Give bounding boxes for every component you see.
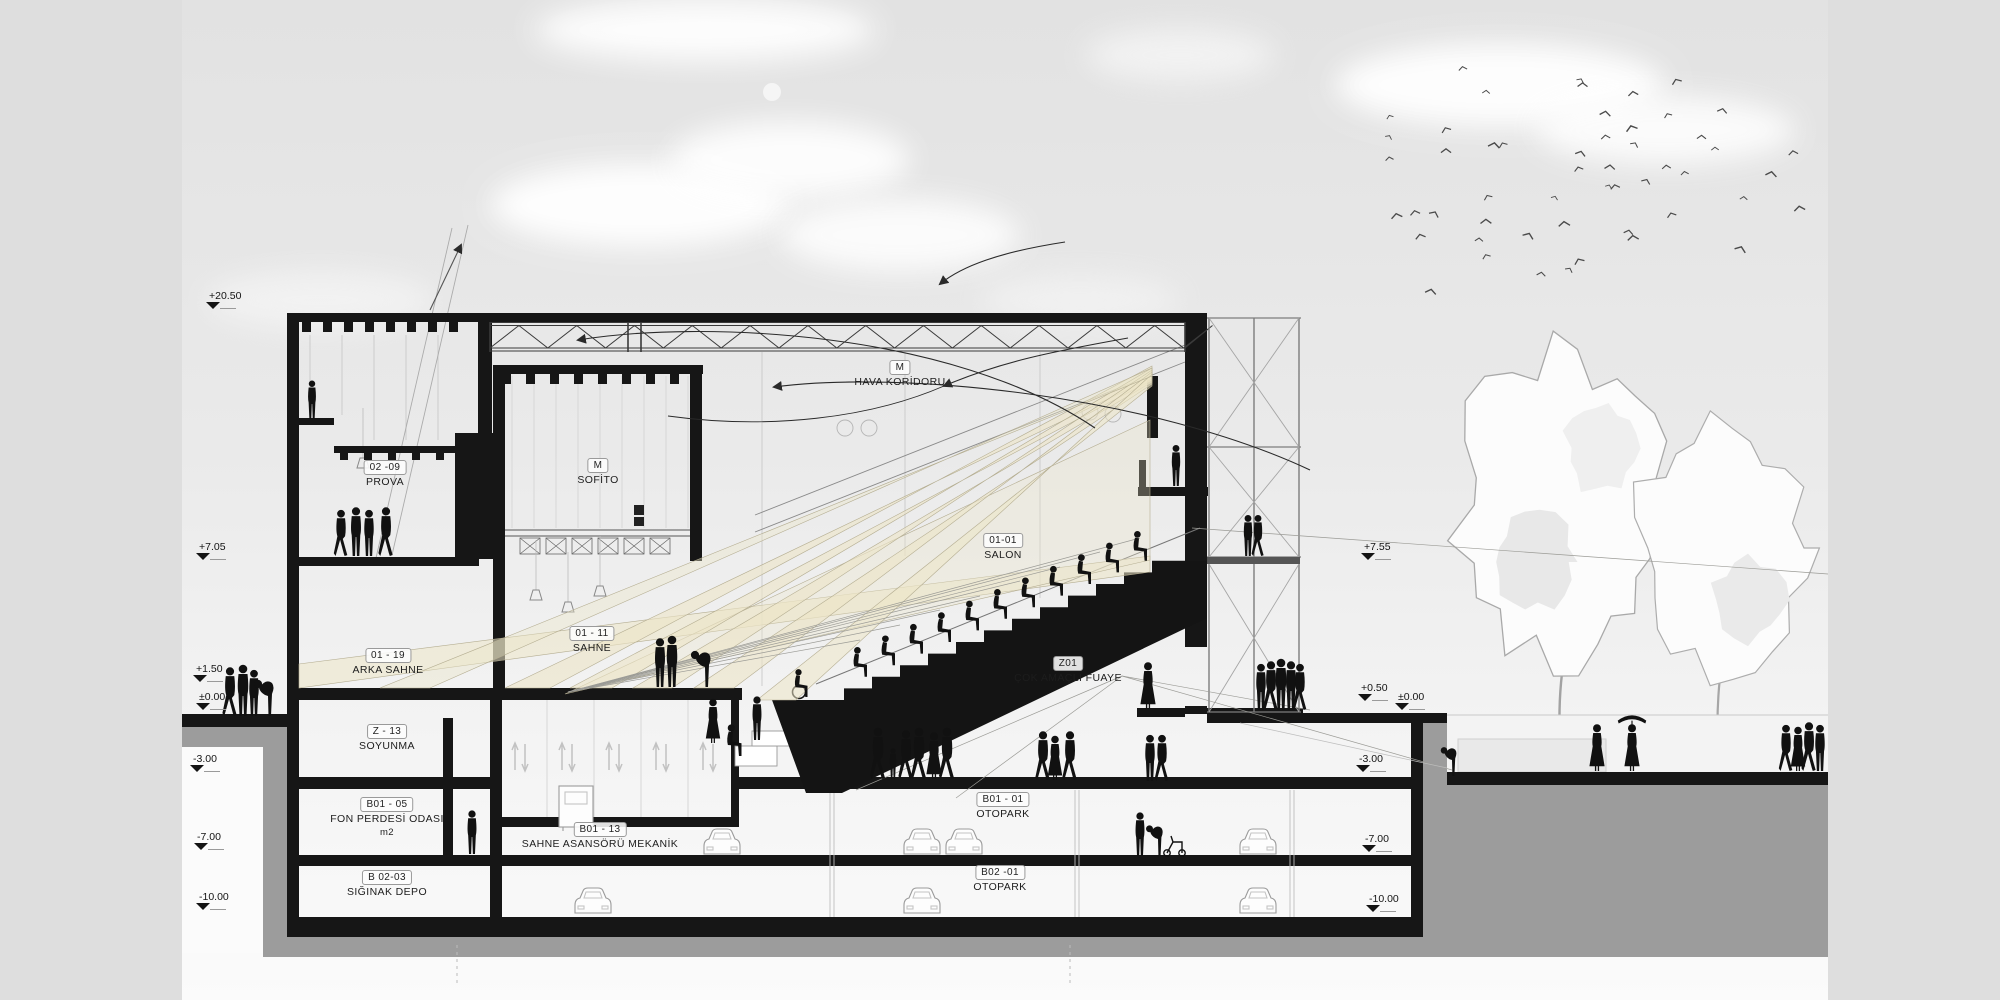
scooter	[1164, 836, 1185, 856]
parked-cars	[575, 829, 1276, 913]
scaffold-tower	[1207, 318, 1301, 712]
elevator-arrows	[512, 743, 716, 771]
section-drawing	[0, 0, 2000, 1000]
moon	[763, 83, 781, 101]
sky-clouds	[205, 0, 1795, 328]
fly-tower-slab	[493, 365, 703, 374]
architectural-section-canvas: +20.50 +7.05 +1.50 ±0.00 -3.00 -7.00 -10…	[0, 0, 2000, 1000]
roof-slab	[287, 313, 1207, 322]
service-truck	[559, 786, 593, 831]
fly-tower-interior	[357, 376, 690, 612]
stage-slab	[295, 688, 742, 700]
left-annotation-strip	[182, 747, 263, 953]
foundation-slab	[287, 917, 1423, 937]
lower-plaza-slab	[1447, 772, 1828, 785]
skylight-rays	[376, 225, 468, 558]
trees	[1448, 331, 1820, 748]
